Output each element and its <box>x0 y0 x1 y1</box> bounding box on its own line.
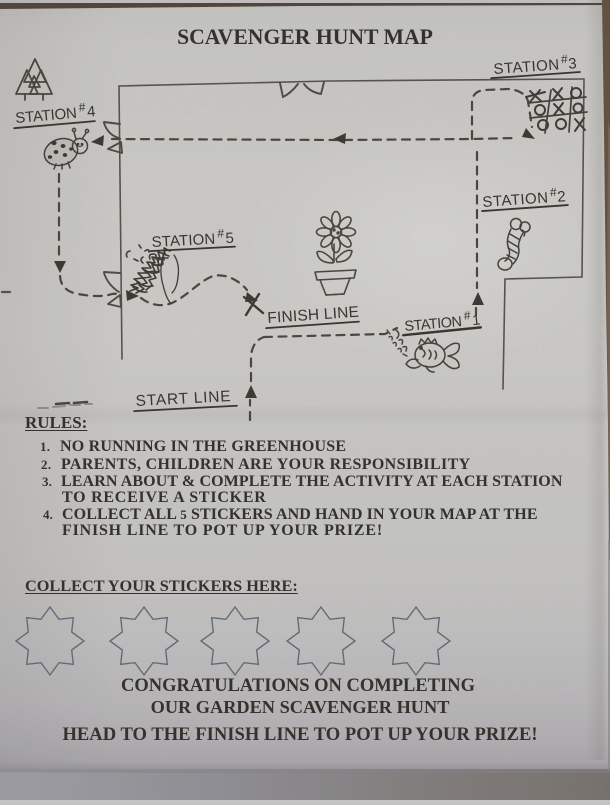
svg-text:FINISH LINE: FINISH LINE <box>267 304 360 327</box>
svg-text:#: # <box>463 308 471 323</box>
svg-text:2: 2 <box>557 188 567 206</box>
svg-text:3: 3 <box>568 55 578 73</box>
svg-text:5: 5 <box>225 230 235 247</box>
svg-text:#: # <box>217 226 225 240</box>
svg-text:#: # <box>78 100 86 115</box>
svg-text:4: 4 <box>86 103 96 121</box>
